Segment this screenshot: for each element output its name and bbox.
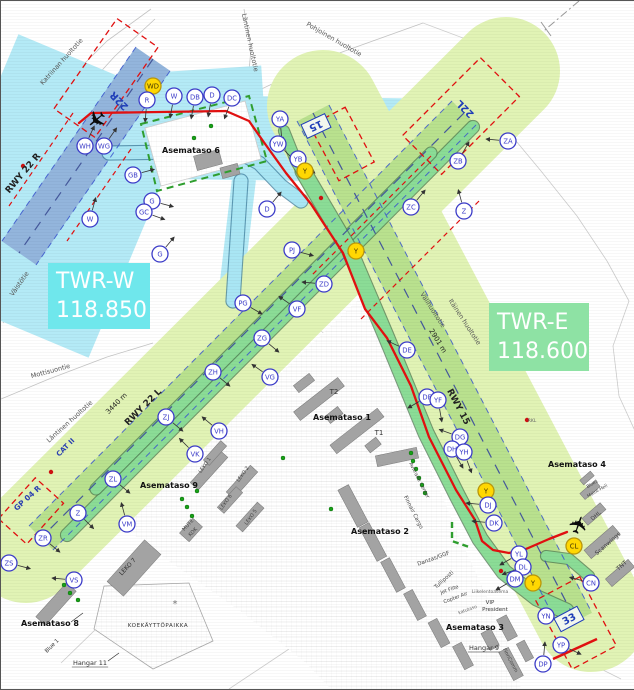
designator-text: Y [353, 247, 359, 255]
designator-text: VH [214, 427, 224, 435]
map-label: Asemataso 1 [313, 413, 371, 422]
designator-text: DM [509, 575, 520, 583]
designator-text: CL [570, 542, 579, 550]
designator-text: D [264, 205, 269, 213]
designator-text: ZD [319, 280, 329, 288]
green-dot [192, 136, 196, 140]
green-dot [209, 124, 213, 128]
map-label: Asemataso 2 [351, 527, 409, 536]
map-label: Liikelentoasema [472, 589, 509, 595]
designator-text: GC [139, 208, 149, 216]
green-dot [329, 507, 333, 511]
designator-text: R [145, 96, 150, 104]
twr-west-callsign: TWR-W [56, 267, 142, 296]
airport-ground-chart: WDRWDBDDCWHWGGBGGCWGYAYWYBYDZAZBZCZPJYPG… [0, 0, 634, 690]
designator-text: YH [458, 448, 468, 456]
map-label: Asemataso 3 [446, 623, 504, 632]
twr-west-frequency-value: 118.850 [56, 296, 142, 325]
designator-text: WD [147, 82, 159, 90]
designator-text: DE [402, 346, 412, 354]
designator-text: YF [433, 396, 442, 404]
designator-text: D [209, 91, 214, 99]
designator-text: PJ [289, 246, 295, 254]
designator-text: Z [462, 207, 467, 215]
taxiway-label-Y: Y [525, 575, 541, 591]
designator-text: ZB [453, 157, 463, 165]
green-dot [180, 497, 184, 501]
green-dot [190, 514, 194, 518]
designator-text: WG [98, 142, 110, 150]
designator-text: DK [489, 519, 499, 527]
designator-text: VS [70, 576, 79, 584]
designator-text: VG [265, 373, 275, 381]
designator-text: G [149, 197, 154, 205]
designator-text: W [171, 92, 178, 100]
map-label: * [173, 599, 178, 610]
designator-text: ZA [503, 137, 513, 145]
designator-text: ZL [109, 475, 118, 483]
map-label: Asemataso 6 [162, 146, 220, 155]
designator-text: GB [128, 171, 138, 179]
map-label: Hangar 11 [73, 659, 107, 667]
map-label: President [482, 607, 508, 613]
designator-text: ZJ [163, 413, 170, 421]
designator-text: W [87, 215, 94, 223]
twr-east-callsign: TWR-E [497, 308, 581, 337]
designator-text: WH [79, 142, 91, 150]
map-label: VIP [486, 600, 495, 606]
green-dot [281, 456, 285, 460]
designator-text: ZG [257, 334, 267, 342]
designator-text: Y [302, 167, 308, 175]
map-label: Asemataso 4 [548, 460, 606, 469]
green-dot [68, 591, 72, 595]
designator-text: DP [538, 660, 547, 668]
designator-text: YB [293, 155, 303, 163]
designator-text: Y [530, 579, 536, 587]
designator-text: G [157, 250, 162, 258]
designator-text: Z [76, 509, 81, 517]
red-dot [319, 196, 323, 200]
designator-text: ZS [5, 559, 14, 567]
designator-text: VM [122, 520, 133, 528]
designator-text: VK [190, 450, 200, 458]
map-label: Asemataso 8 [21, 619, 79, 628]
designator-text: DC [227, 94, 237, 102]
green-dot [409, 451, 413, 455]
map-label: Asemataso 9 [140, 481, 198, 490]
designator-text: ZH [208, 368, 218, 376]
designator-text: DG [455, 433, 466, 441]
green-dot [76, 598, 80, 602]
twr-east-frequency-box: TWR-E 118.600 [489, 303, 589, 371]
designator-text: Y [483, 487, 489, 495]
designator-text: ZR [38, 534, 48, 542]
designator-text: DL [518, 563, 527, 571]
designator-text: YA [275, 115, 285, 123]
designator-text: CN [586, 579, 596, 587]
designator-text: YP [556, 641, 565, 649]
map-label: Hangar 9 [469, 644, 499, 652]
twr-east-frequency-value: 118.600 [497, 337, 581, 366]
designator-text: YL [514, 550, 523, 558]
taxiway-label-CL: CL [566, 538, 582, 554]
designator-text: YW [272, 140, 284, 148]
map-label: T2 [329, 388, 339, 396]
designator-text: PG [238, 299, 247, 307]
designator-text: ZC [406, 203, 416, 211]
taxiway-label-Y: Y [348, 243, 364, 259]
designator-text: DB [190, 93, 200, 101]
green-dot [185, 505, 189, 509]
twr-west-frequency-box: TWR-W 118.850 [48, 263, 150, 329]
green-dot [62, 583, 66, 587]
designator-text: VF [293, 305, 302, 313]
taxiway-label-Y: Y [297, 163, 313, 179]
map-label: RKL [528, 418, 537, 424]
red-dot [49, 470, 53, 474]
red-dot [499, 569, 503, 573]
designator-text: YN [540, 612, 550, 620]
designator-text: DJ [484, 501, 491, 509]
map-label: KOEKÄYTTÖPAIKKA [128, 622, 189, 629]
map-label: T1 [374, 429, 384, 437]
